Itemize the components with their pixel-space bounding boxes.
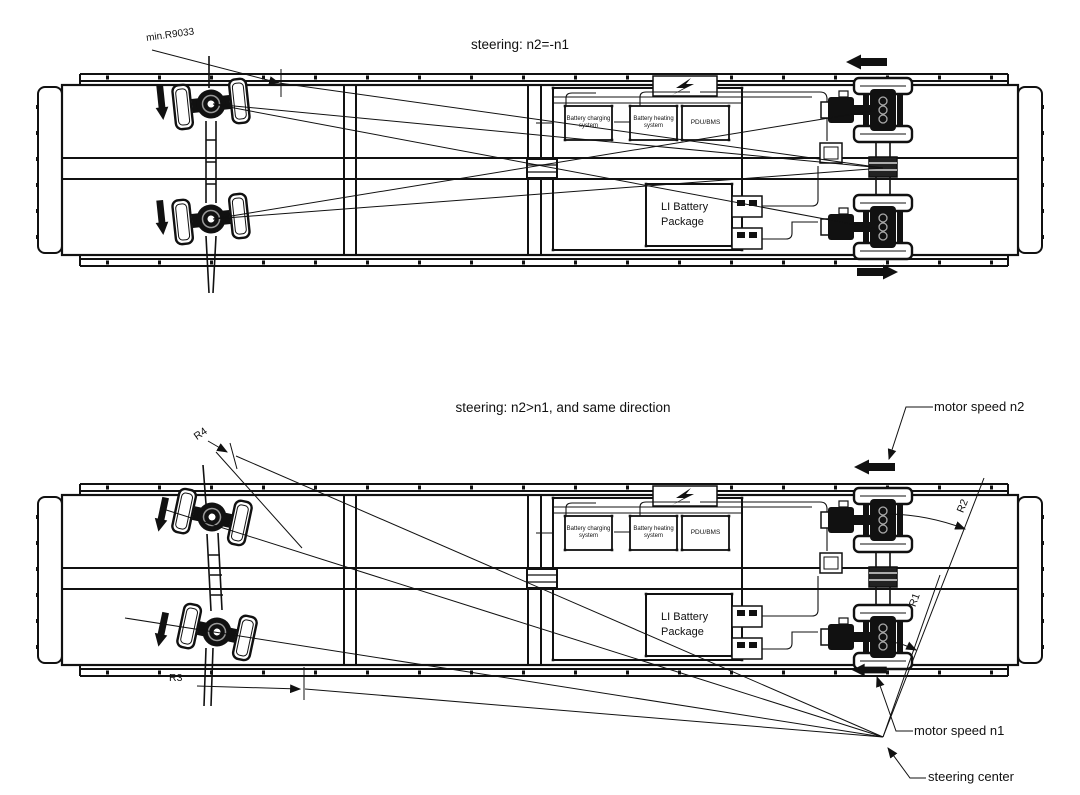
pdu-bms-label: PDU/BMS	[682, 106, 729, 140]
drawing-canvas: steering: n2=-n1 min.R9033 Battery charg…	[0, 0, 1080, 795]
motor-speed-n2-leader	[889, 407, 933, 459]
measure-tick	[230, 443, 237, 469]
min-radius-leader	[152, 50, 279, 83]
r3-label: R3	[169, 672, 182, 684]
drive-wheel-top-right	[821, 488, 912, 552]
diagram2-title: steering: n2>n1, and same direction	[413, 400, 713, 415]
wheel-direction-arrow-left-n2	[854, 460, 895, 475]
pdu-bms-label: PDU/BMS	[682, 516, 729, 550]
radius-line	[125, 618, 883, 737]
diagram1-title: steering: n2=-n1	[400, 37, 640, 52]
li-battery-label: LI Battery Package	[646, 594, 732, 656]
diagram-1	[38, 50, 1043, 293]
steered-wheel-front-left	[171, 488, 253, 546]
technical-drawing	[0, 0, 1080, 795]
steered-wheel-rear-left	[172, 193, 250, 244]
motor-speed-n1-label: motor speed n1	[914, 723, 1004, 738]
battery-charging-label: Battery charging system	[565, 106, 612, 140]
wheel-direction-arrow-down	[153, 200, 169, 236]
motor-speed-n2-label: motor speed n2	[934, 399, 1024, 414]
li-battery-label: LI Battery Package	[646, 184, 732, 246]
wheel-direction-arrow-down	[152, 611, 172, 648]
drive-wheel-top-right	[821, 78, 912, 142]
wheel-direction-arrow-down	[153, 85, 169, 121]
steering-center-leader	[888, 748, 926, 778]
drive-wheel-bottom-right	[821, 605, 912, 669]
steering-center-label: steering center	[928, 769, 1014, 784]
wheel-direction-arrow-down	[152, 496, 172, 533]
radius-line-r3	[305, 689, 883, 737]
battery-heating-label: Battery heating system	[630, 106, 677, 140]
wheel-direction-arrow-left	[846, 55, 887, 70]
r4-leader	[208, 441, 227, 452]
battery-charging-label: Battery charging system	[565, 516, 612, 550]
r3-leader	[197, 686, 300, 689]
diagram-2	[38, 407, 1043, 778]
radius-line	[160, 508, 883, 737]
radius-line	[213, 110, 878, 219]
battery-heating-label: Battery heating system	[630, 516, 677, 550]
